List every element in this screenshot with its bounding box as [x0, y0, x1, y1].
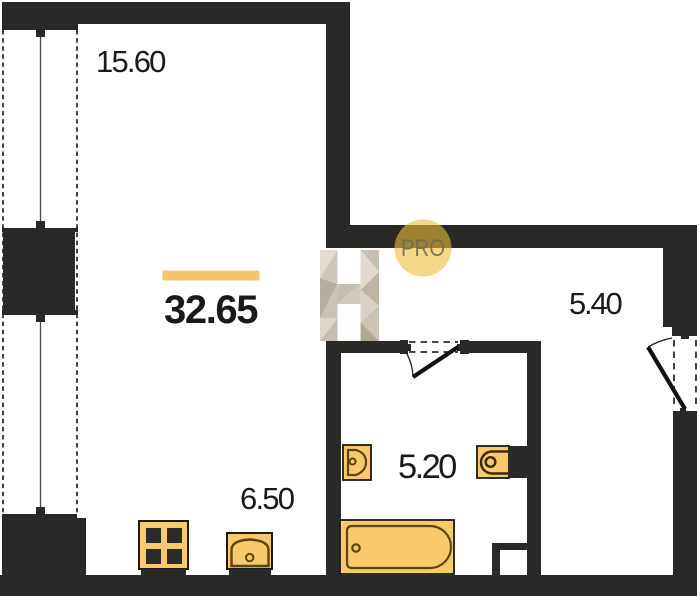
svg-text:32.65: 32.65	[164, 288, 258, 332]
svg-text:5.40: 5.40	[569, 286, 622, 321]
svg-text:5.20: 5.20	[398, 448, 456, 486]
svg-text:6.50: 6.50	[240, 481, 295, 516]
svg-text:PRO: PRO	[401, 235, 445, 262]
svg-text:15.60: 15.60	[96, 44, 166, 79]
